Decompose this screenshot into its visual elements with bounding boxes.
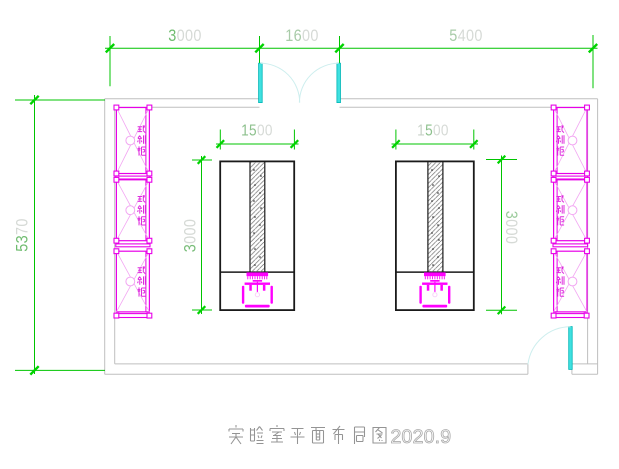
svg-text:2020.9: 2020.9 (391, 426, 452, 448)
svg-text:3000: 3000 (168, 27, 201, 45)
svg-text:5400: 5400 (449, 27, 482, 45)
svg-text:3000: 3000 (502, 211, 520, 244)
svg-text:1500: 1500 (417, 123, 449, 140)
svg-text:1600: 1600 (285, 27, 318, 45)
svg-text:5370: 5370 (13, 218, 31, 251)
svg-text:3000: 3000 (181, 219, 199, 252)
svg-text:1500: 1500 (241, 123, 273, 140)
